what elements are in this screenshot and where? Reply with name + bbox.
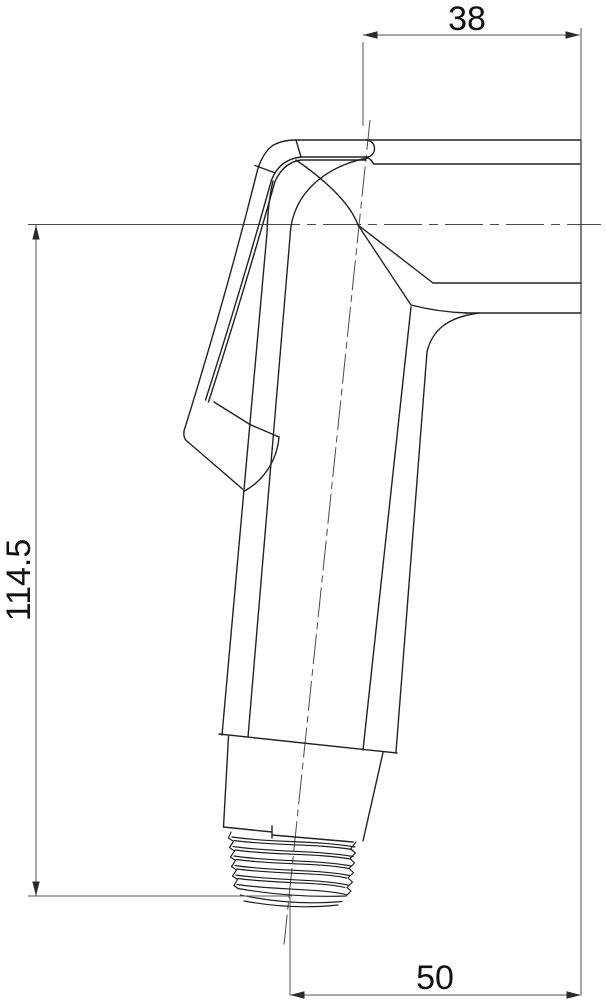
spray-head bbox=[255, 140, 581, 225]
arrowhead-left bbox=[290, 991, 305, 998]
dimension-overall-height: 114.5 bbox=[0, 225, 292, 896]
drawing-canvas: 38 114.5 50 bbox=[0, 0, 606, 1000]
handle-bottom-edge bbox=[219, 734, 397, 753]
handle-body bbox=[219, 158, 427, 753]
trigger-lever bbox=[184, 172, 279, 491]
dimension-label-top-width: 38 bbox=[448, 0, 486, 38]
lever-fillet-curve bbox=[245, 437, 280, 491]
handle-axis-centerline bbox=[284, 120, 370, 945]
corner-break-tick bbox=[296, 140, 301, 157]
dimension-label-overall-height: 114.5 bbox=[0, 539, 38, 622]
arrowhead-right bbox=[566, 31, 581, 38]
pipe-handle-corner bbox=[427, 313, 479, 352]
arrowhead-top bbox=[32, 225, 39, 240]
arrowhead-left bbox=[363, 31, 378, 38]
lever-foot-crease bbox=[214, 402, 279, 437]
connector-base bbox=[224, 737, 384, 843]
technical-drawing: 38 114.5 50 bbox=[0, 0, 606, 1000]
dimension-bottom-width: 50 bbox=[290, 28, 581, 999]
lever-tip bbox=[184, 431, 188, 442]
sprayer-outline bbox=[184, 140, 581, 907]
inlet-pipe bbox=[358, 140, 581, 352]
head-lip bbox=[369, 158, 374, 164]
dimension-top-width: 38 bbox=[363, 0, 580, 126]
dimension-label-bottom-width: 50 bbox=[416, 959, 454, 997]
arrowhead-bottom bbox=[32, 882, 39, 897]
transition-crease-upper bbox=[358, 225, 433, 283]
handle-right-crease bbox=[363, 307, 411, 750]
handle-right-edge bbox=[396, 352, 427, 752]
centerlines bbox=[28, 120, 601, 945]
thread-right-profile bbox=[346, 842, 356, 896]
arrowhead-right bbox=[567, 991, 582, 998]
